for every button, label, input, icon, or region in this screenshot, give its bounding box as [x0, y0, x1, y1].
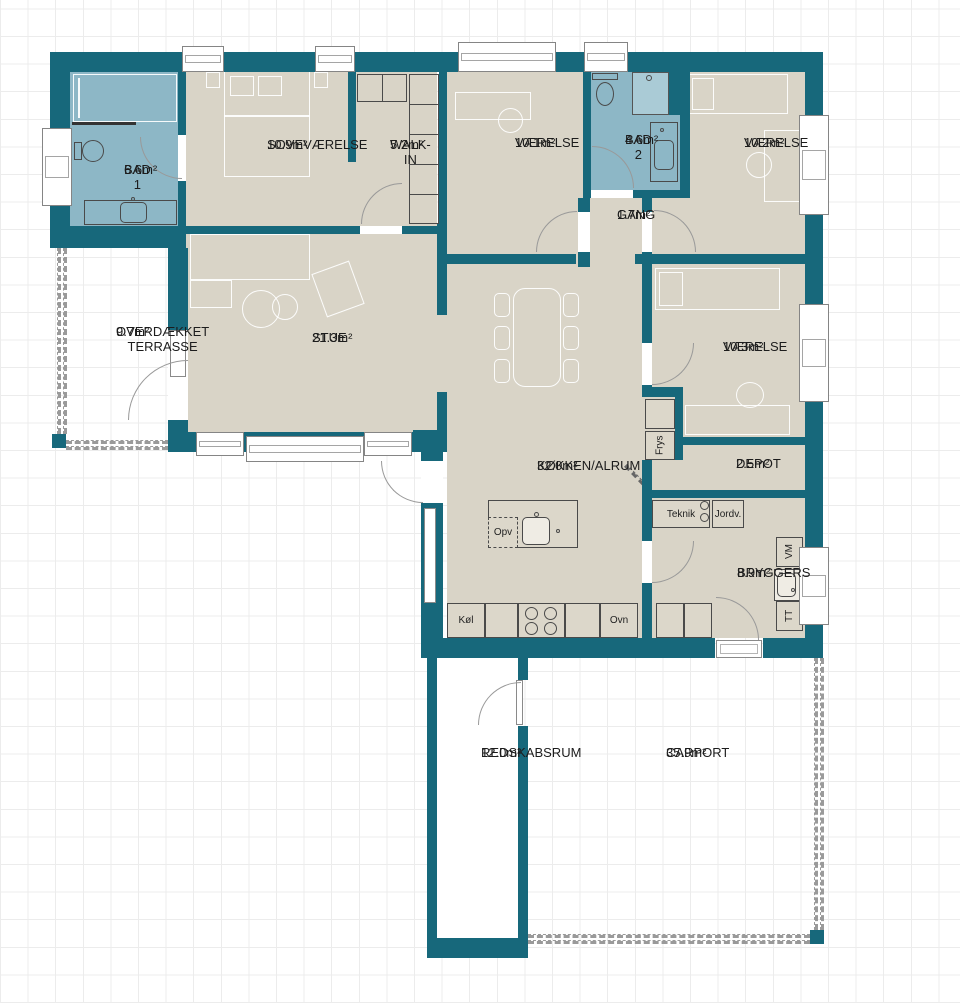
door-arc-terrace[interactable]	[128, 360, 188, 420]
carport-dashed-line	[528, 934, 810, 938]
window	[364, 432, 412, 456]
terrace-dashed-line	[66, 446, 168, 450]
wall-segment	[186, 226, 360, 234]
wall-segment	[518, 658, 528, 680]
carport-dashed-line	[820, 658, 824, 930]
window	[182, 46, 224, 72]
wall-segment	[675, 397, 683, 460]
faucet	[556, 529, 560, 533]
wall-segment	[578, 252, 590, 267]
coffee-table	[272, 294, 298, 320]
toilet	[82, 140, 104, 162]
chair	[563, 359, 579, 383]
wall-segment	[642, 264, 652, 343]
pillow	[258, 76, 282, 96]
burner	[544, 622, 557, 635]
wall-segment	[763, 638, 823, 658]
faucet	[660, 128, 664, 132]
wall-segment	[683, 437, 805, 445]
island-sink	[522, 517, 550, 545]
wall-segment	[413, 430, 447, 452]
toilet	[596, 82, 614, 106]
window	[246, 436, 364, 462]
burner	[525, 622, 538, 635]
carport-dashed-line	[814, 658, 818, 930]
wall-segment	[437, 224, 447, 315]
entry-step	[716, 640, 762, 658]
window	[799, 115, 829, 215]
chair	[494, 326, 510, 350]
window	[584, 42, 628, 72]
faucet	[131, 197, 135, 201]
window	[799, 547, 829, 625]
cabinet	[645, 399, 675, 429]
wall-segment	[168, 420, 188, 432]
door-opening	[421, 461, 443, 503]
counter	[565, 603, 600, 638]
wall-segment	[642, 490, 805, 498]
carport-dashed-line	[528, 940, 810, 944]
wall-segment	[427, 658, 437, 948]
sink	[120, 202, 147, 223]
pillow	[659, 272, 683, 306]
shower-partition	[72, 122, 136, 125]
wall-segment	[642, 583, 652, 638]
heatpump-symbol	[700, 513, 709, 522]
wardrobe-divider	[382, 74, 383, 102]
chair	[494, 359, 510, 383]
window	[196, 432, 244, 456]
cabinet	[656, 603, 684, 638]
chair	[494, 293, 510, 317]
dining-table	[513, 288, 561, 387]
nightstand	[314, 72, 328, 88]
chair	[498, 108, 523, 133]
sofa-chaise	[190, 280, 232, 308]
floor-passage	[437, 315, 447, 392]
wall-segment	[439, 254, 576, 264]
blanket-line	[224, 115, 310, 117]
wall-segment	[635, 254, 805, 264]
window	[315, 46, 355, 72]
terrace-post	[52, 434, 66, 448]
sofa	[190, 234, 310, 280]
nightstand	[206, 72, 220, 88]
toilet-tank	[592, 73, 618, 80]
ground-unit[interactable]: Jordv.	[712, 500, 744, 528]
wall-segment	[178, 72, 186, 135]
chair	[746, 152, 772, 178]
wall-segment	[178, 181, 186, 226]
door-opening	[360, 226, 402, 234]
wall-segment	[642, 460, 652, 541]
chair	[563, 293, 579, 317]
heatpump-symbol	[700, 501, 709, 510]
pillow	[692, 78, 714, 110]
cabinet	[684, 603, 712, 638]
wall-segment	[50, 226, 186, 248]
floor-plan: Opv Køl Ovn Frys Teknik Jordv. VM TT BAD…	[0, 0, 960, 1003]
door-opening	[642, 541, 652, 583]
fridge[interactable]: Køl	[447, 603, 485, 638]
window	[42, 128, 72, 206]
sidelight-glass	[424, 508, 436, 603]
faucet	[534, 512, 539, 517]
door-arc-kitchen-exterior[interactable]	[381, 461, 423, 503]
chair	[736, 382, 764, 408]
wall-segment	[168, 248, 188, 330]
wall-segment	[439, 72, 447, 226]
burner	[544, 607, 557, 620]
dishwasher[interactable]: Opv	[488, 517, 518, 548]
oven[interactable]: Ovn	[600, 603, 638, 638]
wall-segment	[427, 938, 528, 958]
door-opening	[591, 190, 633, 198]
pillow	[230, 76, 254, 96]
faucet	[791, 588, 795, 592]
toilet-tank	[74, 142, 82, 160]
wall-segment	[50, 52, 823, 72]
wall-segment	[583, 72, 591, 198]
cooktop	[518, 603, 565, 638]
terrace-dashed-line	[63, 248, 67, 434]
desk	[685, 405, 790, 435]
burner	[525, 607, 538, 620]
counter	[485, 603, 518, 638]
bathtub	[73, 74, 177, 122]
wall-segment	[578, 198, 590, 212]
wall-segment	[668, 72, 682, 115]
chair	[563, 326, 579, 350]
window	[458, 42, 556, 72]
wall-segment	[421, 638, 715, 658]
door-opening	[578, 212, 590, 252]
freezer[interactable]: Frys	[645, 431, 675, 460]
terrace-dashed-line	[66, 440, 168, 444]
bathtub-detail	[78, 78, 80, 118]
window	[799, 304, 829, 402]
carport-post	[810, 930, 824, 944]
terrace-dashed-line	[57, 248, 61, 434]
wall-segment	[642, 387, 683, 397]
shower-head	[646, 75, 652, 81]
door-opening	[642, 343, 652, 385]
